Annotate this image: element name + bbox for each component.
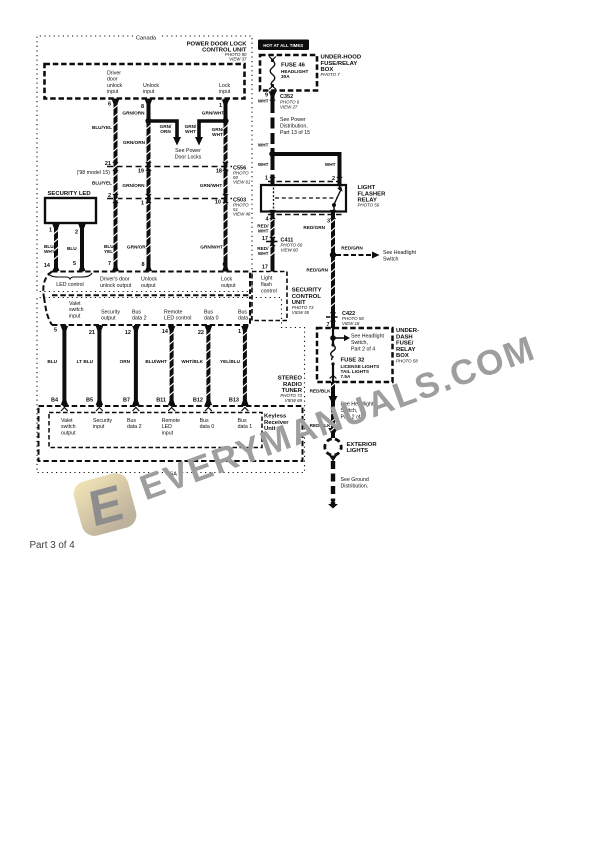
svg-text:1: 1: [141, 201, 144, 207]
svg-text:WHT: WHT: [212, 132, 223, 137]
svg-text:VIEW 46: VIEW 46: [233, 212, 251, 217]
svg-text:WHT: WHT: [325, 162, 336, 167]
svg-text:6: 6: [108, 102, 111, 108]
svg-text:Bus: Bus: [200, 418, 209, 424]
svg-text:Driver: Driver: [107, 71, 121, 77]
svg-text:input: input: [93, 424, 105, 430]
svg-text:flash: flash: [261, 282, 272, 288]
svg-text:ORN: ORN: [160, 129, 171, 134]
svg-text:DASH: DASH: [396, 334, 413, 340]
svg-text:WHT: WHT: [258, 162, 269, 167]
svg-text:14: 14: [162, 329, 169, 335]
svg-text:See Headlight: See Headlight: [351, 334, 385, 340]
svg-text:7.5A: 7.5A: [341, 374, 352, 379]
svg-text:ORN: ORN: [120, 359, 131, 364]
svg-text:SECURITY LED: SECURITY LED: [48, 191, 91, 197]
svg-text:LED control: LED control: [56, 282, 83, 288]
svg-text:Part 3 of 4: Part 3 of 4: [30, 540, 76, 551]
svg-text:unlock: unlock: [107, 83, 123, 89]
svg-text:Lock: Lock: [219, 83, 230, 89]
svg-text:8: 8: [141, 104, 144, 110]
svg-text:Lock: Lock: [221, 277, 232, 283]
svg-text:17: 17: [262, 265, 268, 271]
svg-text:GRN/ORN: GRN/ORN: [127, 245, 150, 250]
svg-text:30A: 30A: [281, 74, 290, 79]
svg-text:Switch: Switch: [383, 256, 399, 262]
svg-text:output: output: [221, 283, 236, 289]
svg-text:data 0: data 0: [204, 316, 219, 322]
svg-text:2: 2: [108, 193, 111, 199]
svg-text:Unlock: Unlock: [143, 83, 159, 89]
svg-text:input: input: [143, 89, 155, 95]
svg-text:input: input: [219, 89, 231, 95]
svg-text:Light: Light: [261, 276, 273, 282]
svg-text:BLU/YEL: BLU/YEL: [92, 125, 112, 130]
svg-text:input: input: [107, 89, 119, 95]
svg-text:8: 8: [141, 262, 144, 268]
svg-text:input: input: [162, 430, 174, 436]
svg-text:WHT: WHT: [44, 249, 55, 254]
svg-text:Bus: Bus: [132, 310, 141, 316]
svg-text:6: 6: [222, 262, 225, 268]
svg-text:RED/GRN: RED/GRN: [303, 225, 325, 230]
svg-text:RED/GRN: RED/GRN: [341, 246, 363, 251]
svg-text:VIEW 37: VIEW 37: [229, 57, 247, 62]
svg-text:See Power: See Power: [280, 117, 306, 123]
svg-text:1: 1: [49, 228, 52, 234]
svg-text:Door Locks: Door Locks: [175, 154, 202, 160]
svg-text:5: 5: [54, 328, 57, 334]
svg-text:See Headlight: See Headlight: [383, 250, 417, 256]
svg-text:FUSE 32: FUSE 32: [341, 358, 366, 364]
svg-text:3: 3: [327, 219, 330, 225]
svg-text:Canada: Canada: [136, 36, 157, 42]
svg-text:See Ground: See Ground: [341, 477, 369, 483]
svg-text:WHT: WHT: [258, 99, 269, 104]
svg-text:Unlock: Unlock: [141, 277, 157, 283]
svg-text:LED control: LED control: [164, 316, 191, 322]
svg-text:VIEW 18: VIEW 18: [342, 321, 360, 326]
svg-text:data 1: data 1: [238, 316, 253, 322]
svg-text:CONTROL: CONTROL: [292, 294, 322, 300]
svg-text:PHOTO 56: PHOTO 56: [358, 203, 380, 208]
svg-text:VIEW 27: VIEW 27: [280, 105, 298, 110]
svg-text:output: output: [141, 283, 156, 289]
svg-text:door: door: [107, 77, 118, 83]
svg-text:Bus: Bus: [238, 310, 247, 316]
svg-text:GRN/WHT: GRN/WHT: [200, 245, 223, 250]
svg-text:Bus: Bus: [127, 418, 136, 424]
svg-text:WHT: WHT: [258, 143, 269, 148]
svg-text:Valet: Valet: [61, 418, 73, 424]
svg-text:Remote: Remote: [164, 310, 182, 316]
svg-text:WHT: WHT: [185, 129, 196, 134]
svg-text:STEREO: STEREO: [278, 376, 303, 382]
svg-text:10: 10: [215, 200, 221, 206]
svg-text:unlock output: unlock output: [100, 283, 132, 289]
svg-text:14: 14: [44, 263, 51, 269]
svg-text:LED: LED: [162, 424, 172, 430]
svg-text:19: 19: [138, 169, 144, 175]
svg-text:Distribution.: Distribution.: [341, 483, 369, 489]
svg-text:GRN/ORN: GRN/ORN: [122, 183, 145, 188]
svg-text:GRN/ORN: GRN/ORN: [123, 140, 146, 145]
svg-text:RED/BLK: RED/BLK: [310, 389, 331, 394]
svg-text:WHT/BLK: WHT/BLK: [181, 359, 203, 364]
svg-text:Remote: Remote: [162, 418, 180, 424]
svg-text:12: 12: [125, 330, 131, 336]
svg-text:RADIO: RADIO: [283, 382, 302, 388]
svg-text:WHT: WHT: [258, 229, 269, 234]
svg-text:Distribution,: Distribution,: [280, 124, 308, 130]
svg-text:FUSE/RELAY: FUSE/RELAY: [321, 61, 358, 67]
svg-text:LIGHT: LIGHT: [358, 185, 376, 191]
svg-text:GRN/ORN: GRN/ORN: [122, 111, 145, 116]
svg-text:switch: switch: [61, 424, 76, 430]
svg-text:21: 21: [105, 161, 111, 167]
svg-text:GRN/WHT: GRN/WHT: [202, 111, 225, 116]
svg-text:Switch,: Switch,: [351, 340, 368, 346]
svg-text:Valet: Valet: [69, 301, 81, 307]
svg-text:Part 2 of 4: Part 2 of 4: [351, 346, 375, 352]
svg-text:B11: B11: [156, 398, 166, 404]
svg-text:RED/GRN: RED/GRN: [306, 268, 328, 273]
svg-text:data 2: data 2: [127, 424, 142, 430]
svg-text:YEL/BLU: YEL/BLU: [220, 359, 241, 364]
svg-text:('98 model 15): ('98 model 15): [77, 170, 111, 176]
svg-text:data 0: data 0: [200, 424, 215, 430]
svg-text:18: 18: [216, 169, 222, 175]
svg-text:1: 1: [265, 176, 268, 182]
svg-text:B13: B13: [229, 398, 239, 404]
svg-text:WHT: WHT: [258, 251, 269, 256]
svg-text:5: 5: [73, 261, 76, 267]
svg-text:7: 7: [108, 261, 111, 267]
svg-text:2: 2: [75, 230, 78, 236]
svg-text:VIEW 60: VIEW 60: [281, 248, 299, 253]
svg-text:21: 21: [89, 330, 95, 336]
svg-text:BLU/YEL: BLU/YEL: [92, 181, 112, 186]
svg-text:FUSE 46: FUSE 46: [281, 63, 306, 69]
svg-text:1: 1: [219, 103, 222, 109]
svg-text:BLU: BLU: [67, 246, 77, 251]
svg-text:VIEW 61: VIEW 61: [233, 180, 251, 185]
svg-text:UNDER-HOOD: UNDER-HOOD: [321, 55, 362, 61]
svg-text:Driver's door: Driver's door: [100, 277, 130, 283]
svg-text:BLU: BLU: [47, 359, 57, 364]
svg-text:B4: B4: [51, 398, 59, 404]
svg-text:FLASHER: FLASHER: [358, 191, 387, 197]
svg-text:EXTERIOR: EXTERIOR: [347, 442, 378, 448]
svg-text:Security: Security: [93, 418, 112, 424]
svg-text:FUSE/: FUSE/: [396, 341, 414, 347]
svg-text:PHOTO 7: PHOTO 7: [321, 72, 341, 77]
svg-text:LIGHTS: LIGHTS: [347, 448, 369, 454]
svg-text:VIEW 55: VIEW 55: [292, 310, 310, 315]
svg-text:VIEW 69: VIEW 69: [285, 398, 303, 403]
svg-text:BLU/WHT: BLU/WHT: [145, 359, 167, 364]
svg-text:switch: switch: [69, 307, 84, 313]
svg-text:input: input: [69, 313, 81, 319]
svg-text:See Power: See Power: [175, 148, 201, 154]
svg-text:PHOTO 58: PHOTO 58: [396, 359, 418, 364]
svg-text:YEL: YEL: [104, 249, 113, 254]
svg-text:UNDER-: UNDER-: [396, 328, 419, 334]
svg-text:HOT AT ALL TIMES: HOT AT ALL TIMES: [263, 43, 303, 48]
svg-text:22: 22: [198, 330, 204, 336]
svg-text:output: output: [61, 430, 76, 436]
svg-text:Bus: Bus: [238, 418, 247, 424]
svg-text:1: 1: [238, 329, 241, 335]
svg-text:GRN/WHT: GRN/WHT: [200, 183, 223, 188]
svg-text:control: control: [261, 288, 277, 294]
svg-text:POWER DOOR LOCK: POWER DOOR LOCK: [187, 41, 248, 47]
svg-text:Security: Security: [101, 310, 120, 316]
svg-text:B5: B5: [86, 398, 93, 404]
svg-text:SECURITY: SECURITY: [292, 288, 322, 294]
svg-text:Part 13 of 15: Part 13 of 15: [280, 130, 310, 136]
svg-text:RELAY: RELAY: [396, 347, 415, 353]
svg-text:data 2: data 2: [132, 316, 147, 322]
svg-text:output: output: [101, 316, 116, 322]
svg-text:B12: B12: [193, 398, 203, 404]
svg-text:LT BLU: LT BLU: [77, 359, 94, 364]
svg-text:Bus: Bus: [204, 310, 213, 316]
svg-text:B7: B7: [123, 398, 130, 404]
